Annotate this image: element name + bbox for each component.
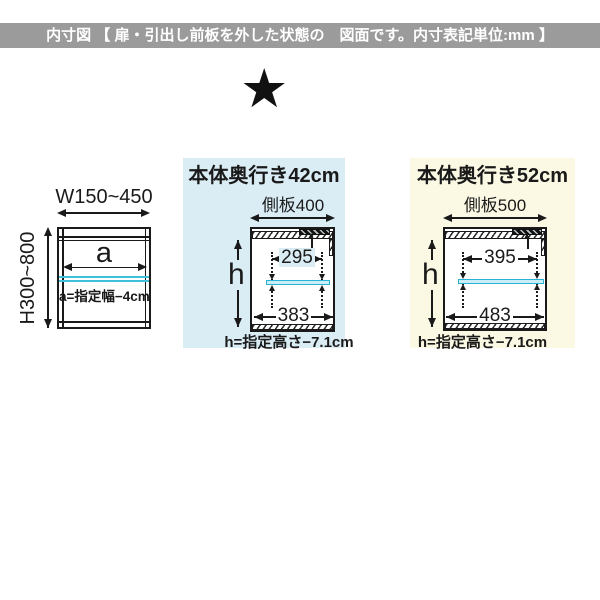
arrowhead-left-icon [443,214,452,222]
middle-diagram: 本体奥行き42cm 側板400 295 [183,158,345,348]
arrowhead-up-icon [234,240,242,249]
side-panel-arrow-line [254,217,330,219]
adjustable-shelf [458,279,544,284]
side-back-hatch [541,239,545,256]
inner-height-symbol: h [225,260,248,290]
shelf-marker-icon [534,273,540,279]
shelf-marker-icon [269,274,275,280]
inner-height-symbol: h [419,260,442,290]
inner-width-symbol: a [59,239,149,268]
arrowhead-up-icon [524,233,530,239]
star-icon: ★ [240,62,288,116]
arrowhead-up-icon [308,233,314,239]
bottom-panel-hatch [445,323,545,329]
upper-width-dimension: 295 [272,248,322,268]
bottom-rail-line [59,321,149,323]
side-panel-arrow-line [447,217,543,219]
shelf-marker-icon [319,285,325,291]
bottom-panel-hatch [252,324,333,330]
lower-width-dimension: 383 [254,306,333,326]
shelf-line [59,280,149,282]
inner-width-arrow-line [66,267,142,269]
cabinet-cross-section: 395 483 [443,227,547,331]
right-diagram: 本体奥行き52cm 側板500 395 [410,158,575,348]
side-panel-label: 側板400 [228,196,358,216]
side-panel-label: 側板500 [430,196,560,216]
upper-width-value: 295 [279,248,315,267]
shelf-marker-icon [460,273,466,279]
arrowhead-down-icon [428,318,436,327]
arrowhead-right-icon [538,214,547,222]
header-title: 内寸図 【 扉・引出し前板を外した状態の 図面です。内寸表記単位:mm 】 [46,27,554,44]
shelf-marker-icon [269,285,275,291]
cabinet-outline: a a=指定幅−4cm [57,227,151,329]
upper-width-value: 395 [482,248,518,267]
header-bar: 内寸図 【 扉・引出し前板を外した状態の 図面です。内寸表記単位:mm 】 [0,23,600,48]
upper-width-dimension: 395 [463,248,537,268]
arrowhead-left-icon [250,214,259,222]
shelf-marker-icon [319,274,325,280]
arrowhead-down-icon [234,318,242,327]
screenshot-root: 内寸図 【 扉・引出し前板を外した状態の 図面です。内寸表記単位:mm 】 ★ … [0,0,600,600]
depth-title: 本体奥行き42cm [183,165,345,188]
arrowhead-right-icon [326,214,335,222]
shelf-marker-icon [460,284,466,290]
arrowhead-down-icon [44,319,52,328]
height-formula: h=指定高さ−7.1cm [223,334,355,351]
cabinet-cross-section: 295 383 [250,227,335,332]
depth-title: 本体奥行き52cm [410,165,575,188]
lower-width-value: 383 [276,306,312,325]
arrowhead-left-icon [63,263,72,271]
height-arrow-line [47,230,49,328]
arrowhead-up-icon [428,240,436,249]
width-arrow-line [62,212,144,214]
back-rail-bar [299,229,330,235]
arrowhead-left-icon [57,209,66,217]
arrowhead-right-icon [138,263,147,271]
arrowhead-right-icon [141,209,150,217]
inner-width-formula: a=指定幅−4cm [59,289,149,305]
shelf-marker-icon [534,284,540,290]
shelf-line [59,276,149,278]
height-formula: h=指定高さ−7.1cm [400,334,565,351]
width-range-label: W150~450 [50,186,158,209]
arrowhead-up-icon [44,227,52,236]
height-range-label: H300~800 [17,230,37,326]
side-back-hatch [329,239,333,256]
